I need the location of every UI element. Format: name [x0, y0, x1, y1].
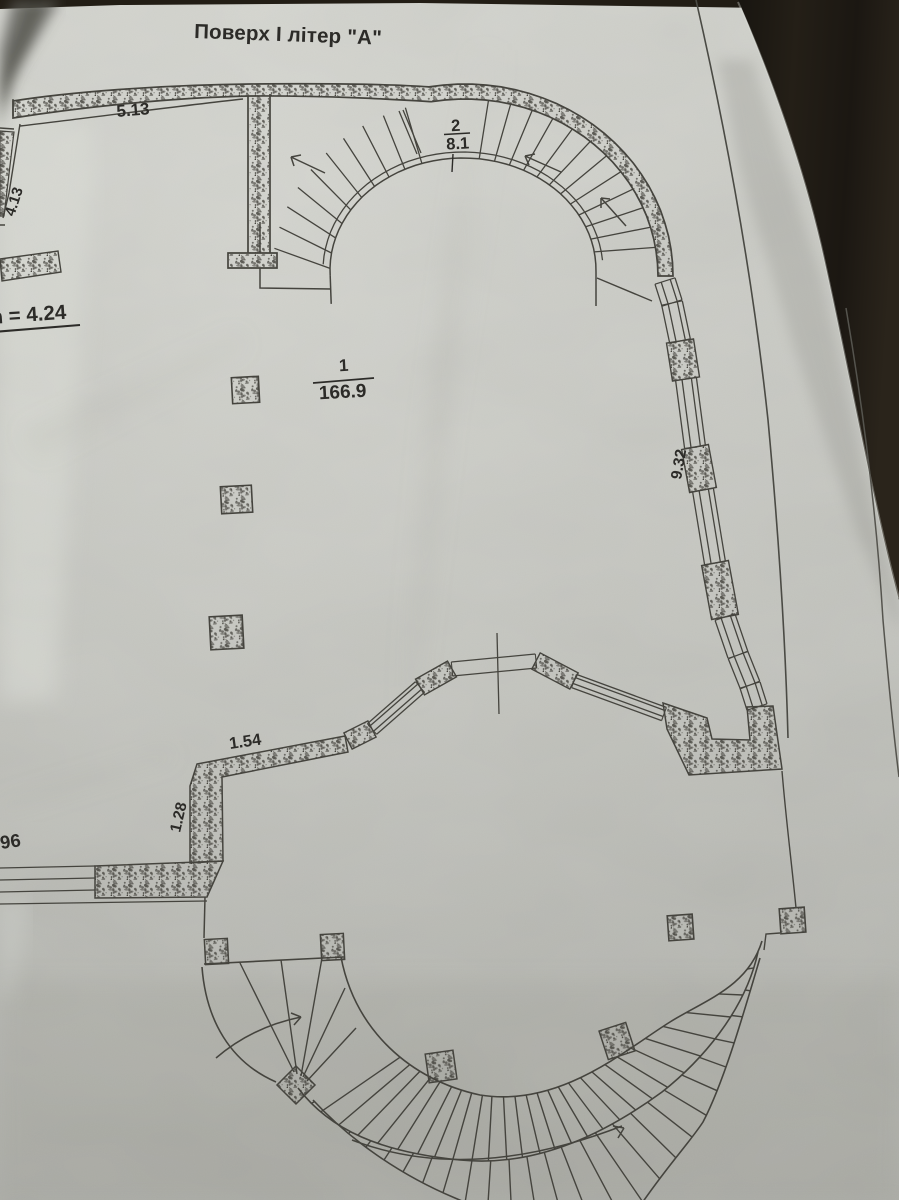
svg-text:1: 1 [338, 356, 348, 375]
svg-text:8.1: 8.1 [446, 134, 470, 153]
svg-text:96: 96 [0, 829, 22, 853]
svg-text:2: 2 [451, 117, 461, 135]
svg-text:166.9: 166.9 [318, 381, 367, 404]
svg-text:5.13: 5.13 [116, 99, 151, 121]
